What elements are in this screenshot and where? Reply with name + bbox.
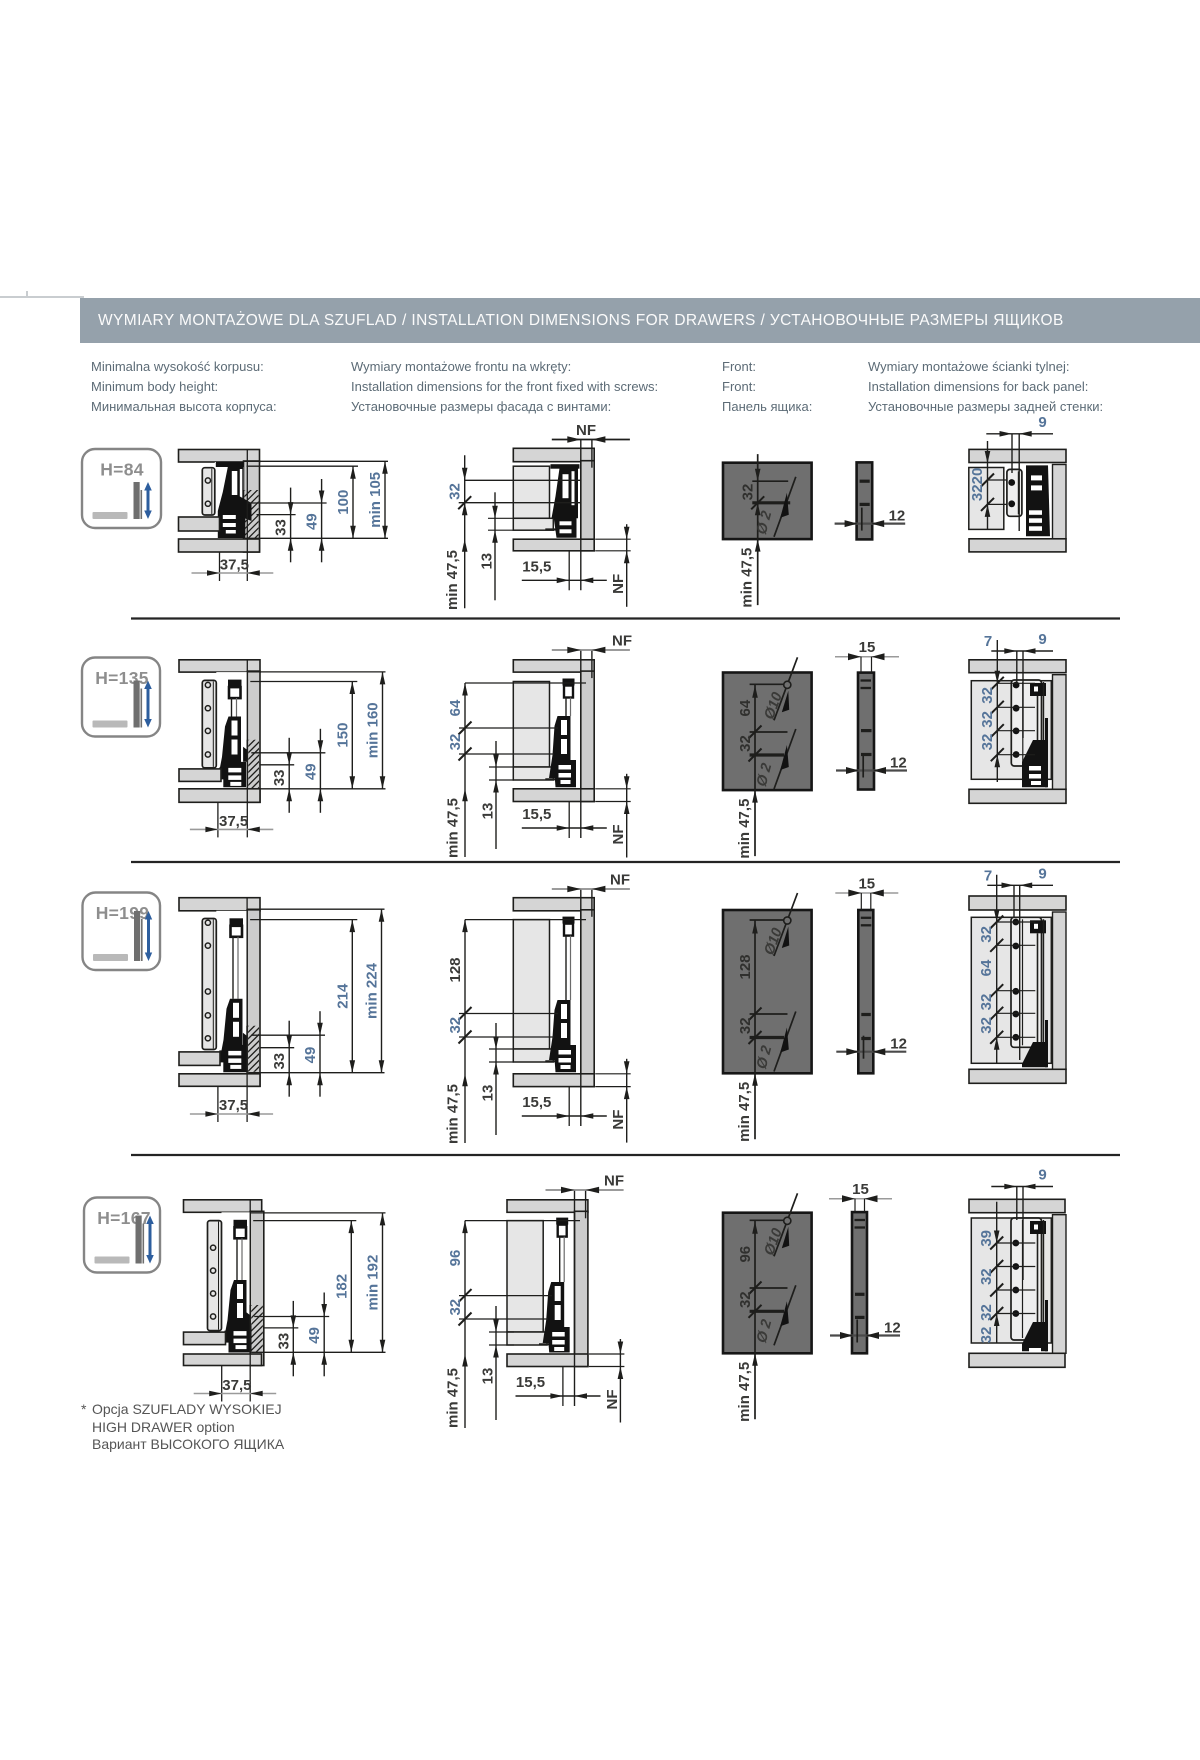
svg-text:128: 128: [737, 954, 754, 979]
svg-text:15,5: 15,5: [522, 558, 551, 575]
svg-text:13: 13: [479, 553, 496, 570]
svg-text:32: 32: [979, 711, 996, 728]
svg-text:7: 7: [984, 867, 992, 884]
svg-text:182: 182: [333, 1274, 350, 1299]
svg-text:37,5: 37,5: [220, 557, 249, 574]
svg-text:15,5: 15,5: [516, 1374, 545, 1391]
svg-text:H=84: H=84: [100, 460, 144, 480]
svg-text:NF: NF: [610, 574, 627, 594]
svg-text:32: 32: [978, 1327, 995, 1344]
svg-text:min 47,5: min 47,5: [736, 1362, 753, 1422]
svg-text:32: 32: [978, 926, 995, 943]
svg-text:64: 64: [447, 699, 464, 716]
svg-text:32: 32: [978, 1304, 995, 1321]
svg-text:9: 9: [1038, 865, 1046, 882]
svg-text:64: 64: [978, 959, 995, 976]
svg-text:12: 12: [889, 508, 906, 525]
svg-text:NF: NF: [610, 1110, 627, 1130]
svg-text:NF: NF: [610, 872, 630, 889]
svg-text:NF: NF: [610, 825, 627, 845]
svg-text:9: 9: [1038, 631, 1046, 648]
svg-text:37,5: 37,5: [222, 1377, 251, 1394]
svg-text:min 47,5: min 47,5: [736, 799, 753, 859]
svg-text:12: 12: [890, 755, 907, 772]
svg-text:39: 39: [978, 1230, 995, 1247]
svg-text:32: 32: [978, 1268, 995, 1285]
svg-text:min 192: min 192: [365, 1255, 382, 1311]
svg-text:32: 32: [737, 1291, 754, 1308]
svg-text:49: 49: [306, 1327, 323, 1344]
svg-text:32: 32: [978, 1017, 995, 1034]
svg-text:32: 32: [737, 1017, 754, 1034]
svg-text:100: 100: [335, 490, 352, 515]
svg-text:49: 49: [302, 763, 319, 780]
svg-text:32: 32: [979, 734, 996, 751]
svg-text:96: 96: [447, 1250, 464, 1267]
svg-text:15,5: 15,5: [522, 1094, 551, 1111]
svg-text:150: 150: [334, 723, 351, 748]
svg-text:96: 96: [737, 1246, 754, 1263]
svg-text:33: 33: [271, 1053, 288, 1070]
svg-text:NF: NF: [604, 1390, 621, 1410]
svg-text:128: 128: [447, 957, 464, 982]
svg-text:12: 12: [890, 1036, 907, 1053]
svg-text:min 47,5: min 47,5: [445, 1084, 462, 1144]
svg-text:33: 33: [273, 519, 290, 536]
svg-text:32: 32: [979, 687, 996, 704]
svg-text:9: 9: [1038, 1167, 1046, 1184]
svg-text:37,5: 37,5: [219, 1097, 248, 1114]
svg-text:min 224: min 224: [364, 962, 381, 1019]
svg-text:min 47,5: min 47,5: [736, 1082, 753, 1142]
svg-text:32: 32: [447, 1299, 464, 1316]
svg-text:7: 7: [984, 633, 992, 650]
svg-text:15,5: 15,5: [522, 806, 551, 823]
svg-text:15: 15: [859, 639, 876, 656]
svg-text:214: 214: [334, 983, 351, 1009]
svg-text:32: 32: [447, 734, 464, 751]
svg-text:12: 12: [884, 1320, 901, 1337]
svg-text:H=135: H=135: [95, 668, 149, 688]
svg-text:49: 49: [304, 513, 321, 530]
svg-text:NF: NF: [612, 633, 632, 650]
svg-text:32: 32: [969, 484, 986, 501]
svg-text:13: 13: [480, 1085, 497, 1102]
svg-text:9: 9: [1038, 414, 1046, 431]
svg-text:49: 49: [302, 1047, 319, 1064]
svg-text:32: 32: [978, 994, 995, 1011]
svg-text:37,5: 37,5: [219, 813, 248, 830]
svg-text:32: 32: [737, 735, 754, 752]
svg-text:64: 64: [737, 699, 754, 716]
svg-text:15: 15: [858, 876, 875, 893]
svg-text:32: 32: [447, 1017, 464, 1034]
svg-text:13: 13: [480, 1368, 497, 1385]
svg-text:min 105: min 105: [367, 472, 384, 528]
svg-text:15: 15: [852, 1181, 869, 1198]
svg-text:32: 32: [447, 483, 464, 500]
svg-text:32: 32: [740, 484, 757, 501]
svg-text:min 47,5: min 47,5: [445, 798, 462, 858]
svg-text:13: 13: [480, 803, 497, 820]
svg-text:NF: NF: [604, 1173, 624, 1190]
svg-text:20: 20: [969, 468, 986, 485]
svg-text:min 47,5: min 47,5: [739, 548, 756, 608]
svg-text:min 47,5: min 47,5: [444, 550, 461, 610]
svg-text:33: 33: [275, 1333, 292, 1350]
svg-text:min 47,5: min 47,5: [445, 1368, 462, 1428]
svg-text:NF: NF: [576, 422, 596, 439]
svg-text:33: 33: [271, 769, 288, 786]
svg-text:min 160: min 160: [365, 702, 382, 758]
